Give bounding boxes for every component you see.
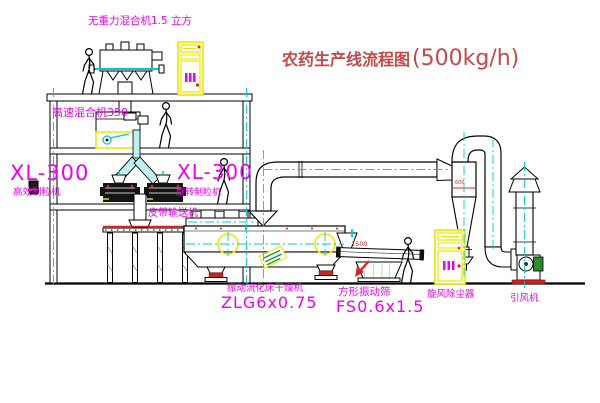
cad-drawing: 农药生产线流程图 (500kg/h) 无重力混合机1.5 立方 高速混合机350… — [0, 0, 600, 403]
person-top-floor — [160, 103, 172, 148]
title-capacity: (500kg/h) — [412, 46, 519, 71]
label-granulator-left: 高效制粒机 — [13, 188, 61, 198]
label-xl300-left: XL-300 — [10, 163, 89, 184]
title-text: 农药生产线流程图 — [282, 46, 410, 70]
label-belt-conveyor: 皮带输送机 — [148, 209, 198, 219]
label-dryer-model: ZLG6x0.75 — [221, 295, 318, 311]
label-high-speed-mixer: 高速混合机350 — [52, 107, 128, 118]
label-gravity-mixer: 无重力混合机1.5 立方 — [88, 16, 192, 27]
label-sieve-name: 方形振动筛 — [338, 287, 391, 298]
person-ground — [402, 238, 414, 283]
control-cabinet-sieve — [435, 230, 465, 284]
label-fan: 引风机 — [510, 294, 539, 304]
dimension-cyclone: 600 — [455, 181, 465, 186]
diagram-title: 农药生产线流程图 (500kg/h) — [282, 46, 519, 71]
square-sieve — [336, 229, 424, 282]
gravity-free-mixer — [89, 42, 164, 94]
label-xl300-right: XL-300 — [177, 162, 253, 182]
label-granulator-right: 旋转制粒机 — [176, 189, 221, 198]
label-sieve-model: FS0.6x1.5 — [336, 299, 424, 315]
label-cyclone: 旋风除尘器 — [427, 290, 475, 300]
fluid-bed-dryer — [184, 210, 345, 282]
dimension-sieve-length: 1500 — [351, 241, 368, 248]
control-cabinet-top — [178, 42, 203, 95]
exhaust-duct — [256, 159, 452, 211]
